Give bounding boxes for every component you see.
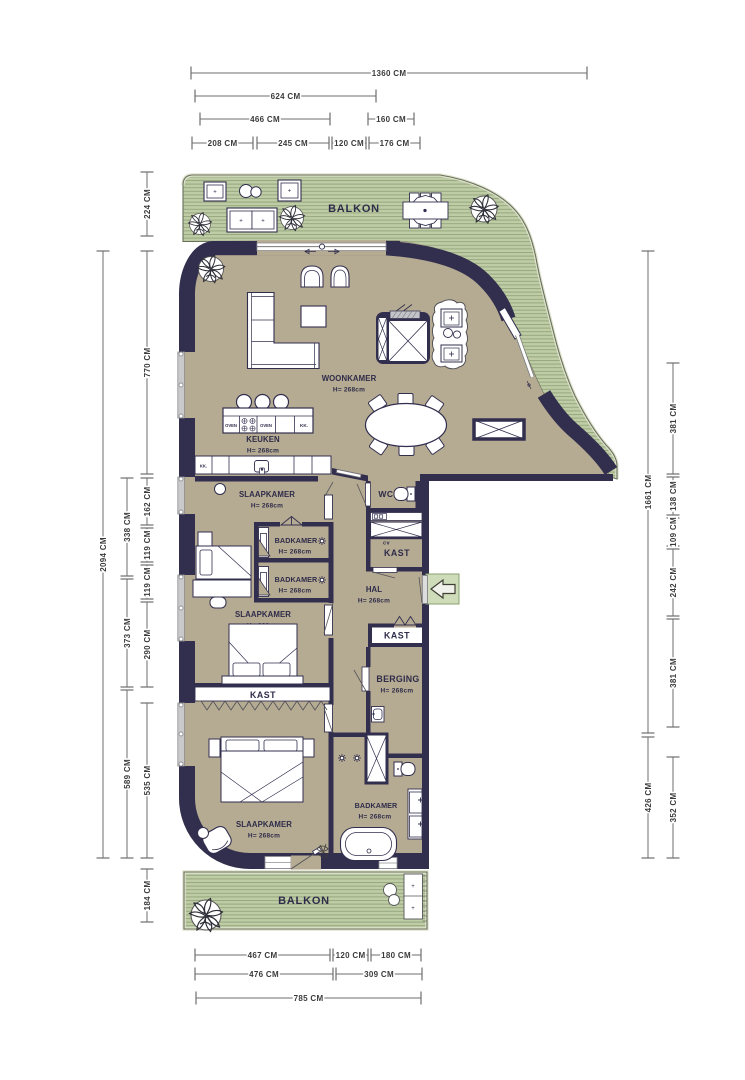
svg-text:+: + xyxy=(261,219,265,225)
svg-text:+: + xyxy=(411,884,415,890)
svg-text:cv: cv xyxy=(383,541,391,547)
svg-text:H= 268cm: H= 268cm xyxy=(248,833,280,840)
svg-text:2094 CM: 2094 CM xyxy=(99,537,108,572)
svg-text:138 CM: 138 CM xyxy=(669,481,678,511)
svg-text:290 CM: 290 CM xyxy=(143,630,152,660)
svg-text:KK.: KK. xyxy=(200,464,207,469)
svg-text:381 CM: 381 CM xyxy=(669,658,678,688)
svg-text:160 CM: 160 CM xyxy=(376,115,406,124)
svg-text:338 CM: 338 CM xyxy=(123,512,132,542)
svg-text:535 CM: 535 CM xyxy=(143,766,152,796)
svg-text:+: + xyxy=(239,219,243,225)
svg-text:H= 268cm: H= 268cm xyxy=(359,814,392,821)
svg-text:109 CM: 109 CM xyxy=(669,517,678,547)
svg-text:HAL: HAL xyxy=(366,585,382,594)
svg-text:180 CM: 180 CM xyxy=(381,951,411,960)
svg-text:224 CM: 224 CM xyxy=(143,189,152,219)
svg-text:SLAAPKAMER: SLAAPKAMER xyxy=(236,820,292,829)
svg-text:1360 CM: 1360 CM xyxy=(372,69,407,78)
svg-text:+: + xyxy=(411,906,415,912)
svg-text:466 CM: 466 CM xyxy=(250,115,280,124)
svg-text:476 CM: 476 CM xyxy=(249,970,279,979)
svg-text:184 CM: 184 CM xyxy=(143,881,152,911)
svg-text:BADKAMER: BADKAMER xyxy=(275,536,318,545)
svg-text:H= 268cm: H= 268cm xyxy=(333,387,365,394)
svg-text:BALKON: BALKON xyxy=(278,895,330,907)
svg-text:H= 268cm: H= 268cm xyxy=(381,688,414,695)
svg-text:BADKAMER: BADKAMER xyxy=(275,575,318,584)
svg-text:352 CM: 352 CM xyxy=(669,793,678,823)
svg-text:KAST: KAST xyxy=(384,631,410,641)
svg-text:373 CM: 373 CM xyxy=(123,618,132,648)
svg-text:242 CM: 242 CM xyxy=(669,568,678,598)
svg-text:+: + xyxy=(213,190,217,196)
svg-text:467 CM: 467 CM xyxy=(248,951,278,960)
svg-text:309 CM: 309 CM xyxy=(364,970,394,979)
svg-text:SLAAPKAMER: SLAAPKAMER xyxy=(235,610,291,619)
svg-text:120 CM: 120 CM xyxy=(334,139,364,148)
svg-text:120 CM: 120 CM xyxy=(336,951,366,960)
svg-text:H= 268cm: H= 268cm xyxy=(279,588,312,595)
svg-text:119 CM: 119 CM xyxy=(143,567,152,596)
svg-text:589 CM: 589 CM xyxy=(123,759,132,789)
svg-text:H= 268cm: H= 268cm xyxy=(247,448,279,455)
svg-text:H= 268cm: H= 268cm xyxy=(279,549,312,556)
svg-text:OVEN: OVEN xyxy=(225,423,237,428)
svg-text:BERGING: BERGING xyxy=(376,674,419,684)
svg-text:426 CM: 426 CM xyxy=(644,783,653,813)
svg-text:KAST: KAST xyxy=(250,690,276,700)
svg-text:624 CM: 624 CM xyxy=(271,92,301,101)
svg-text:WOONKAMER: WOONKAMER xyxy=(322,374,377,383)
svg-text:770 CM: 770 CM xyxy=(143,348,152,378)
svg-text:BALKON: BALKON xyxy=(328,203,380,215)
svg-text:162 CM: 162 CM xyxy=(143,487,152,517)
svg-text:BADKAMER: BADKAMER xyxy=(355,801,398,810)
svg-text:+: + xyxy=(288,189,292,195)
svg-text:785 CM: 785 CM xyxy=(294,994,324,1003)
svg-text:KK.: KK. xyxy=(300,423,308,428)
svg-text:381 CM: 381 CM xyxy=(669,404,678,434)
svg-text:245 CM: 245 CM xyxy=(278,139,308,148)
svg-text:WC: WC xyxy=(378,489,393,499)
svg-text:OVEN: OVEN xyxy=(260,423,272,428)
svg-text:119 CM: 119 CM xyxy=(143,530,152,559)
svg-text:H= 268cm: H= 268cm xyxy=(358,598,390,605)
svg-text:176 CM: 176 CM xyxy=(380,139,410,148)
svg-text:208 CM: 208 CM xyxy=(208,139,238,148)
svg-text:KEUKEN: KEUKEN xyxy=(246,435,280,444)
svg-text:KAST: KAST xyxy=(384,548,410,558)
svg-text:1661 CM: 1661 CM xyxy=(644,475,653,510)
svg-text:SLAAPKAMER: SLAAPKAMER xyxy=(239,490,295,499)
svg-text:H= 268cm: H= 268cm xyxy=(251,503,283,510)
